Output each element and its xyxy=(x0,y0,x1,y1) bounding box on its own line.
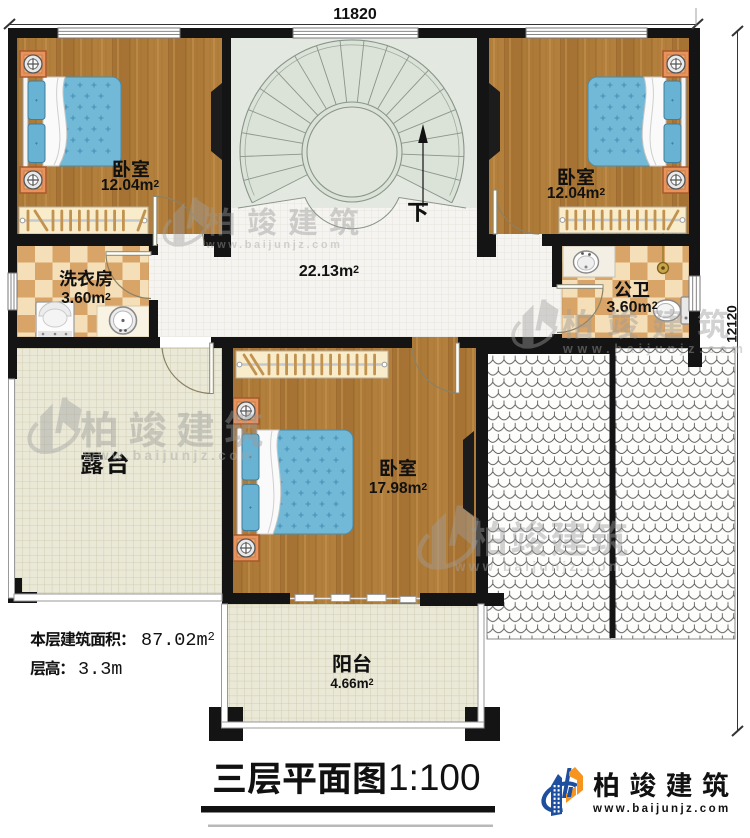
svg-text:www.baijunjz.com: www.baijunjz.com xyxy=(83,448,257,463)
svg-text:4.66m2: 4.66m2 xyxy=(330,676,373,691)
svg-text:1:100: 1:100 xyxy=(388,757,481,798)
svg-text:87.02m2: 87.02m2 xyxy=(141,630,215,651)
svg-text:www.baijunjz.com: www.baijunjz.com xyxy=(562,342,748,356)
svg-text:3.60m2: 3.60m2 xyxy=(61,290,111,307)
svg-text:www.baijunjz.com: www.baijunjz.com xyxy=(205,239,343,251)
svg-text:12.04m2: 12.04m2 xyxy=(101,177,160,194)
svg-text:12.04m2: 12.04m2 xyxy=(547,185,606,202)
svg-text:3.3m: 3.3m xyxy=(78,659,122,680)
svg-text:11820: 11820 xyxy=(333,6,377,23)
svg-text:22.13m2: 22.13m2 xyxy=(299,263,359,280)
svg-text:17.98m2: 17.98m2 xyxy=(369,480,428,497)
svg-text:www.baijunjz.com: www.baijunjz.com xyxy=(592,803,731,815)
svg-text:www.baijunjz.com: www.baijunjz.com xyxy=(454,559,624,574)
